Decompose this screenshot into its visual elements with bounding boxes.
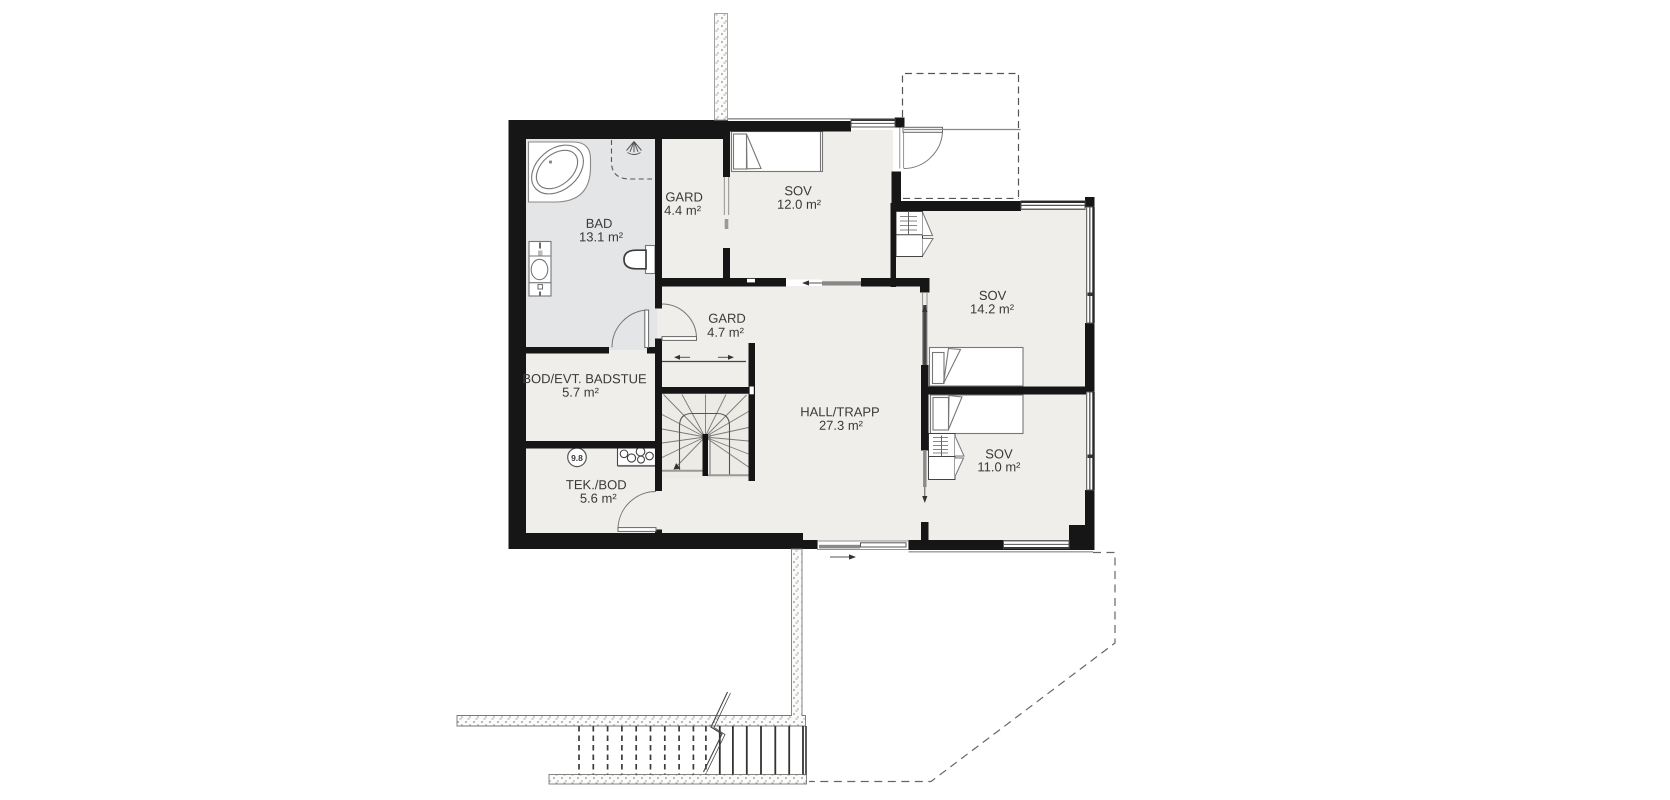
svg-text:27.3 m²: 27.3 m² bbox=[819, 418, 864, 433]
svg-text:14.2 m²: 14.2 m² bbox=[970, 301, 1015, 316]
svg-text:4.7 m²: 4.7 m² bbox=[707, 325, 745, 340]
svg-text:9.8: 9.8 bbox=[571, 453, 583, 463]
svg-text:4.4 m²: 4.4 m² bbox=[664, 203, 702, 218]
svg-text:12.0 m²: 12.0 m² bbox=[777, 197, 822, 212]
svg-text:GARD: GARD bbox=[708, 311, 746, 326]
svg-text:13.1 m²: 13.1 m² bbox=[579, 229, 624, 244]
svg-text:5.7 m²: 5.7 m² bbox=[562, 385, 600, 400]
svg-text:5.6 m²: 5.6 m² bbox=[580, 491, 618, 506]
svg-text:11.0 m²: 11.0 m² bbox=[977, 459, 1021, 474]
